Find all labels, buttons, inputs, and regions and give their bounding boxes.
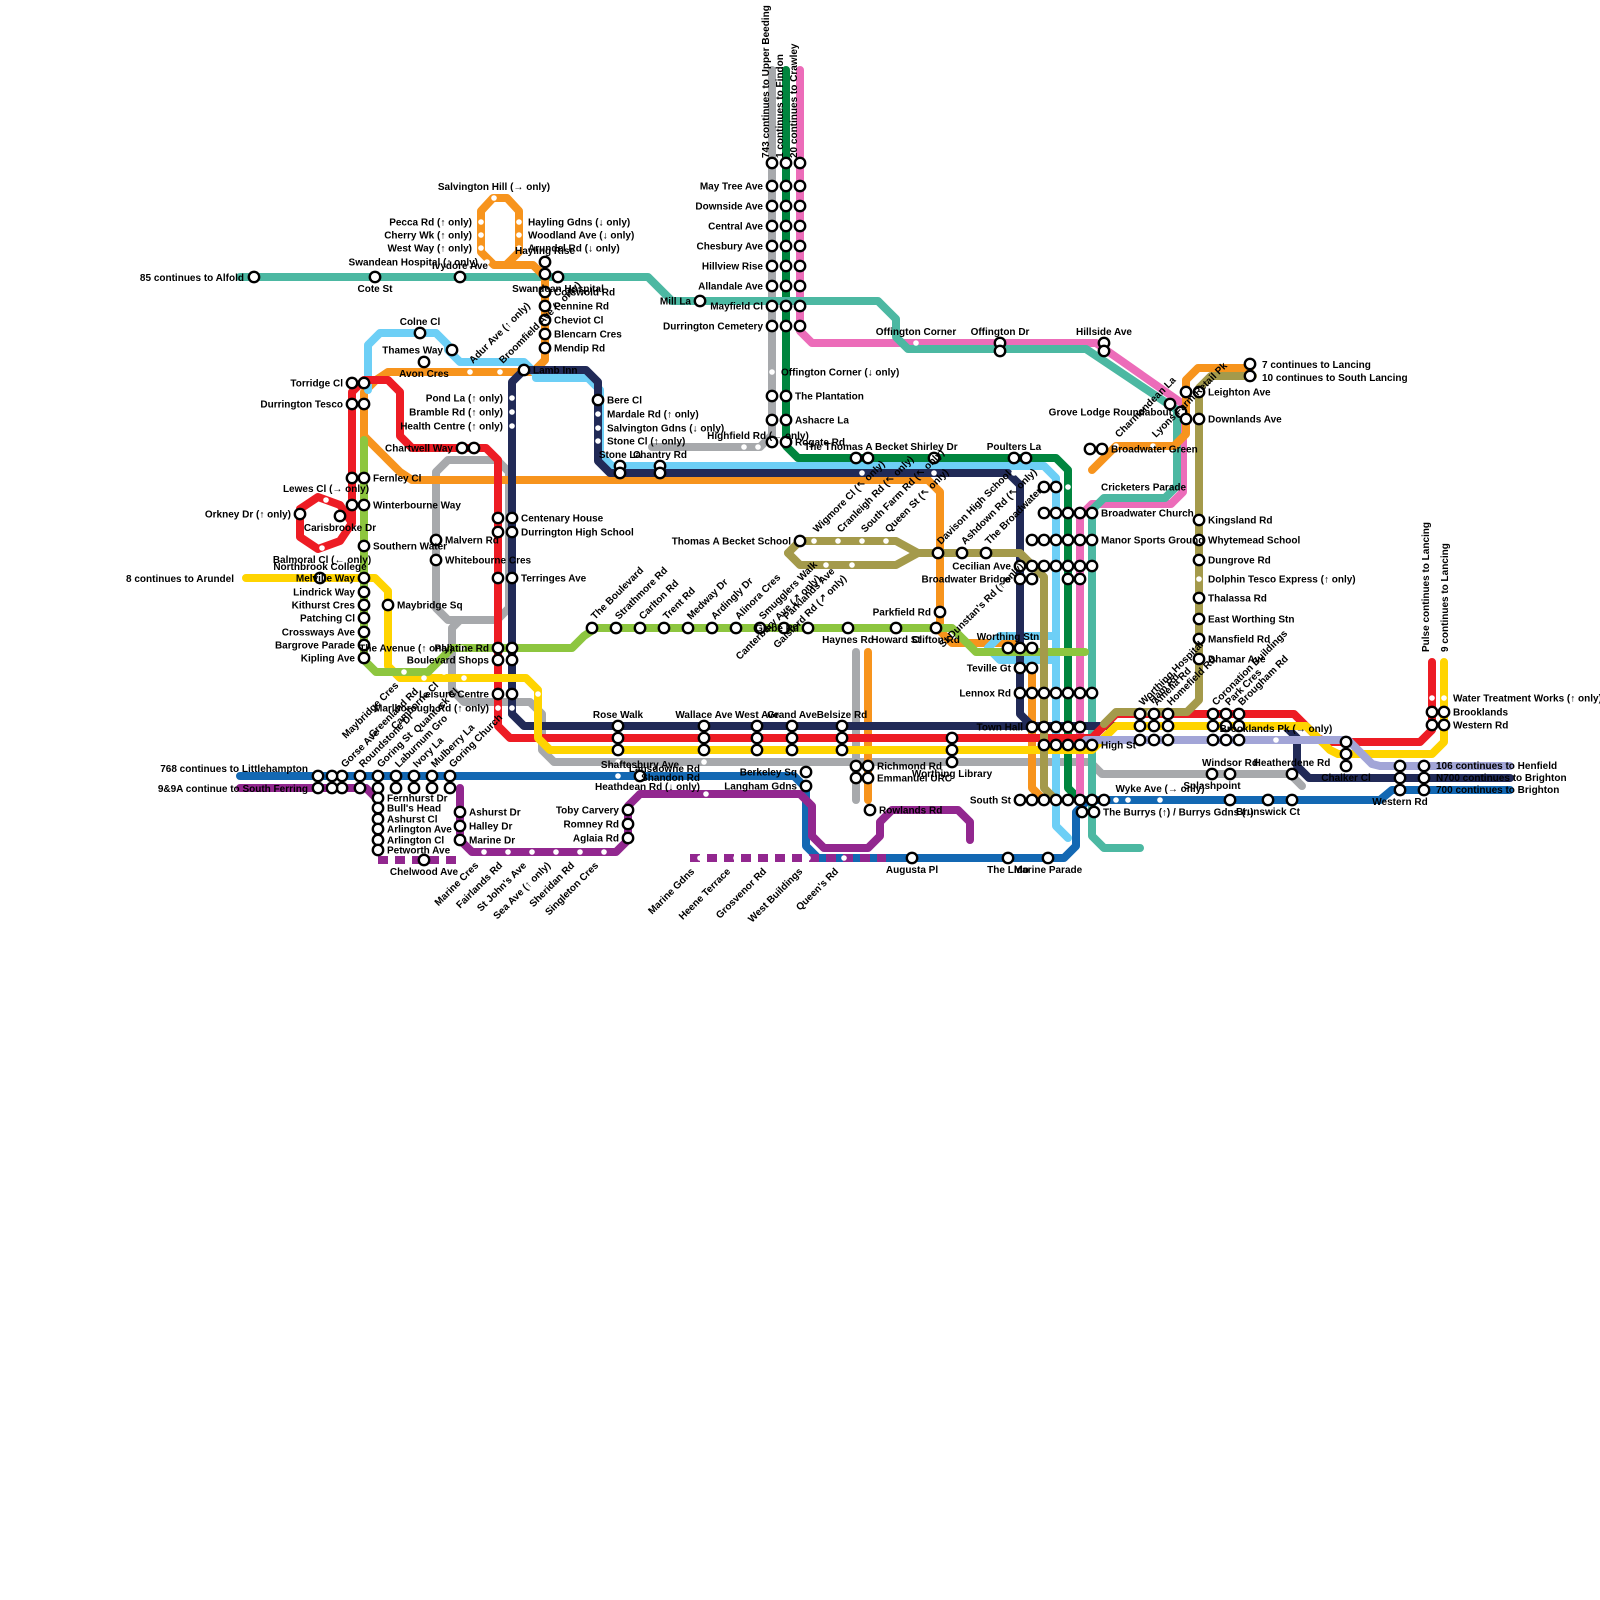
stop-label: Lamb Inn bbox=[533, 366, 577, 377]
stop-label: Wallace Ave bbox=[675, 710, 733, 721]
stop-marker bbox=[409, 783, 419, 793]
stop-label: Ashacre La bbox=[795, 416, 849, 427]
stop-marker bbox=[1194, 593, 1204, 603]
stop-marker bbox=[1419, 773, 1429, 783]
stop-label: Bull's Head bbox=[387, 804, 441, 815]
stop-marker bbox=[1427, 720, 1437, 730]
stop-marker bbox=[613, 745, 623, 755]
stop-marker bbox=[781, 158, 791, 168]
stop-marker bbox=[781, 221, 791, 231]
stop-marker bbox=[455, 821, 465, 831]
stop-marker bbox=[355, 783, 365, 793]
stop-label: Colne Cl bbox=[400, 317, 441, 328]
minor-stop-dot bbox=[478, 245, 484, 251]
stop-marker bbox=[767, 181, 777, 191]
stop-marker bbox=[907, 853, 917, 863]
minor-stop-dot bbox=[553, 849, 559, 855]
stop-label: Rose Walk bbox=[593, 710, 644, 721]
stop-marker bbox=[1135, 709, 1145, 719]
stop-label: Ashurst Dr bbox=[469, 808, 521, 819]
stop-label: Hillview Rise bbox=[702, 262, 764, 273]
stop-marker bbox=[359, 587, 369, 597]
minor-stop-dot bbox=[755, 444, 761, 450]
minor-stop-dot bbox=[509, 395, 515, 401]
stop-marker bbox=[540, 329, 550, 339]
minor-stop-dot bbox=[461, 675, 467, 681]
stop-marker bbox=[335, 511, 345, 521]
stop-marker bbox=[370, 272, 380, 282]
stop-marker bbox=[863, 773, 873, 783]
bus-network-map: May Tree AveDownside AveCentral AveChesb… bbox=[0, 0, 1600, 1600]
minor-stop-dot bbox=[577, 849, 583, 855]
stop-marker bbox=[373, 803, 383, 813]
stop-label: May Tree Ave bbox=[700, 182, 764, 193]
stop-marker bbox=[795, 181, 805, 191]
stop-marker bbox=[795, 321, 805, 331]
stop-marker bbox=[1221, 735, 1231, 745]
stop-marker bbox=[767, 241, 777, 251]
stop-marker bbox=[1149, 721, 1159, 731]
stop-label: Terringes Ave bbox=[521, 574, 587, 585]
map-note: 743 continues to Upper Beeding bbox=[761, 5, 772, 158]
stop-label: Whitebourne Cres bbox=[445, 556, 532, 567]
minor-stop-dot bbox=[733, 855, 739, 861]
stop-label: Offington Dr bbox=[971, 327, 1030, 338]
stop-marker bbox=[347, 378, 357, 388]
stop-marker bbox=[507, 689, 517, 699]
stop-label: Winterbourne Way bbox=[373, 501, 461, 512]
stop-marker bbox=[781, 281, 791, 291]
stop-marker bbox=[1245, 359, 1255, 369]
stop-marker bbox=[1075, 508, 1085, 518]
stop-marker bbox=[1039, 688, 1049, 698]
stop-label: Cricketers Parade bbox=[1101, 483, 1186, 494]
stop-marker bbox=[933, 548, 943, 558]
stop-label: Parkfield Rd bbox=[873, 608, 931, 619]
stop-marker bbox=[1063, 688, 1073, 698]
minor-stop-dot bbox=[937, 653, 943, 659]
stop-label: Belsize Rd bbox=[817, 710, 868, 721]
stop-label: Mayfield Cl bbox=[710, 302, 763, 313]
stop-marker bbox=[1051, 508, 1061, 518]
stop-label: Grove Lodge Roundabout bbox=[1049, 408, 1173, 419]
stop-marker bbox=[851, 773, 861, 783]
stop-marker bbox=[1341, 749, 1351, 759]
stop-marker bbox=[1039, 508, 1049, 518]
stop-marker bbox=[1075, 740, 1085, 750]
stop-marker bbox=[623, 805, 633, 815]
map-note: 106 continues to Henfield bbox=[1436, 761, 1557, 772]
stop-marker bbox=[1051, 482, 1061, 492]
map-note: 85 continues to Alfold bbox=[140, 273, 244, 284]
stop-label: Mansfield Rd bbox=[1208, 635, 1270, 646]
stop-marker bbox=[1439, 720, 1449, 730]
stop-label: Worthing Library bbox=[912, 769, 993, 780]
stop-label: Crossways Ave bbox=[282, 628, 356, 639]
stop-marker bbox=[615, 468, 625, 478]
stop-label: Northbrook College bbox=[273, 562, 367, 573]
stop-marker bbox=[359, 541, 369, 551]
stop-marker bbox=[347, 500, 357, 510]
stop-marker bbox=[553, 272, 563, 282]
stop-label: Kipling Ave bbox=[301, 654, 356, 665]
stop-marker bbox=[1043, 853, 1053, 863]
stop-marker bbox=[1039, 722, 1049, 732]
stop-marker bbox=[781, 301, 791, 311]
stop-marker bbox=[1087, 508, 1097, 518]
stop-marker bbox=[843, 623, 853, 633]
stop-marker bbox=[1027, 663, 1037, 673]
stop-marker bbox=[767, 281, 777, 291]
stop-marker bbox=[1063, 574, 1073, 584]
stop-marker bbox=[1027, 574, 1037, 584]
stop-marker bbox=[1194, 555, 1204, 565]
stop-label: Pond La (↑ only) bbox=[426, 394, 503, 405]
stop-label: Windsor Rd bbox=[1202, 758, 1258, 769]
stop-marker bbox=[787, 733, 797, 743]
stop-marker bbox=[683, 623, 693, 633]
stop-label: Dolphin Tesco Express (↑ only) bbox=[1208, 575, 1356, 586]
stop-label: Broadwater Church bbox=[1101, 509, 1194, 520]
map-note: 20 continues to Crawley bbox=[789, 43, 800, 158]
minor-stop-dot bbox=[1429, 695, 1435, 701]
stop-label: Manor Sports Ground bbox=[1101, 536, 1204, 547]
map-note: 7 continues to Lancing bbox=[1262, 360, 1371, 371]
stop-label: Carisbrooke Dr bbox=[304, 523, 376, 534]
minor-stop-dot bbox=[319, 545, 325, 551]
stop-marker bbox=[1089, 807, 1099, 817]
stop-marker bbox=[1063, 740, 1073, 750]
stop-label: Brooklands Pk (→ only) bbox=[1220, 724, 1333, 735]
stop-marker bbox=[373, 824, 383, 834]
stop-marker bbox=[455, 272, 465, 282]
stop-marker bbox=[957, 548, 967, 558]
stop-marker bbox=[540, 257, 550, 267]
map-note: 700 continues to Brighton bbox=[1436, 785, 1559, 796]
stop-marker bbox=[415, 328, 425, 338]
stop-marker bbox=[1051, 535, 1061, 545]
stop-marker bbox=[935, 607, 945, 617]
stop-marker bbox=[540, 269, 550, 279]
stop-marker bbox=[1149, 735, 1159, 745]
stop-marker bbox=[1163, 735, 1173, 745]
minor-stop-dot bbox=[601, 849, 607, 855]
stop-marker bbox=[359, 627, 369, 637]
stop-label: Marine Dr bbox=[469, 836, 515, 847]
map-note: 1 continues to Findon bbox=[775, 54, 786, 158]
minor-stop-dot bbox=[516, 232, 522, 238]
minor-stop-dot bbox=[495, 705, 501, 711]
stop-marker bbox=[1287, 769, 1297, 779]
stop-marker bbox=[1003, 853, 1013, 863]
stop-label: Southern Water bbox=[373, 542, 447, 553]
stop-marker bbox=[1015, 795, 1025, 805]
stop-label: Cherry Wk (↑ only) bbox=[384, 231, 472, 242]
stop-marker bbox=[1051, 688, 1061, 698]
minor-stop-dot bbox=[811, 538, 817, 544]
stop-marker bbox=[1208, 735, 1218, 745]
stop-marker bbox=[851, 453, 861, 463]
stop-marker bbox=[1234, 735, 1244, 745]
stop-marker bbox=[767, 201, 777, 211]
stop-label: Augusta Pl bbox=[886, 865, 938, 876]
stop-label: Langham Gdns bbox=[724, 782, 797, 793]
stop-marker bbox=[795, 261, 805, 271]
minor-stop-dot bbox=[509, 409, 515, 415]
stop-marker bbox=[1135, 721, 1145, 731]
stop-marker bbox=[767, 158, 777, 168]
stop-marker bbox=[1163, 709, 1173, 719]
stop-marker bbox=[1051, 740, 1061, 750]
minor-stop-dot bbox=[741, 444, 747, 450]
stop-marker bbox=[445, 783, 455, 793]
minor-stop-dot bbox=[1441, 695, 1447, 701]
stop-label: Chantry Rd bbox=[633, 450, 687, 461]
stop-marker bbox=[1015, 663, 1025, 673]
bus-network-map-svg: May Tree AveDownside AveCentral AveChesb… bbox=[0, 0, 1600, 1600]
stop-marker bbox=[1341, 761, 1351, 771]
stop-marker bbox=[1221, 709, 1231, 719]
stop-label: East Worthing Stn bbox=[1208, 615, 1294, 626]
stop-label: Arundel Rd (↓ only) bbox=[528, 244, 620, 255]
stop-marker bbox=[493, 513, 503, 523]
stop-label: Lewes Cl (→ only) bbox=[283, 484, 369, 495]
stop-label: Offington Corner bbox=[876, 327, 957, 338]
stop-label: Stone Cl (↑ only) bbox=[607, 437, 685, 448]
stop-marker bbox=[1245, 371, 1255, 381]
map-note: 9 continues to Lancing bbox=[1440, 543, 1451, 652]
stop-marker bbox=[313, 771, 323, 781]
stop-marker bbox=[1039, 535, 1049, 545]
stop-marker bbox=[1194, 414, 1204, 424]
map-note: Heathdean Rd (↓ only) bbox=[595, 782, 700, 793]
stop-marker bbox=[1419, 785, 1429, 795]
stop-label: Chalker Cl bbox=[1321, 773, 1371, 784]
stop-marker bbox=[1063, 508, 1073, 518]
stop-marker bbox=[507, 643, 517, 653]
minor-stop-dot bbox=[769, 369, 775, 375]
stop-marker bbox=[493, 573, 503, 583]
stop-marker bbox=[507, 513, 517, 523]
map-note: N700 continues to Brighton bbox=[1436, 773, 1567, 784]
stop-label: Blencarn Cres bbox=[554, 330, 622, 341]
stop-label: Petworth Ave bbox=[387, 846, 451, 857]
stop-label: Chelwood Ave bbox=[390, 867, 459, 878]
stop-marker bbox=[1263, 795, 1273, 805]
stop-marker bbox=[1208, 721, 1218, 731]
minor-stop-dot bbox=[697, 855, 703, 861]
route-purple-west bbox=[240, 788, 378, 852]
map-note: 768 continues to Littlehampton bbox=[160, 764, 308, 775]
stop-marker bbox=[507, 527, 517, 537]
minor-stop-dot bbox=[481, 849, 487, 855]
stop-marker bbox=[1207, 769, 1217, 779]
stop-label: Highfield Rd (← only) bbox=[707, 431, 809, 442]
minor-stop-dot bbox=[478, 232, 484, 238]
minor-stop-dot bbox=[1113, 797, 1119, 803]
stop-label: Thalassa Rd bbox=[1208, 594, 1267, 605]
stop-label: South St bbox=[970, 796, 1012, 807]
stop-marker bbox=[699, 745, 709, 755]
stop-marker bbox=[1087, 795, 1097, 805]
minor-stop-dot bbox=[478, 219, 484, 225]
stop-label: Romney Rd bbox=[563, 820, 619, 831]
minor-stop-dot bbox=[1273, 737, 1279, 743]
stop-label: Bramble Rd (↑ only) bbox=[409, 408, 503, 419]
stop-label: Broadwater Green bbox=[1111, 445, 1198, 456]
stop-marker bbox=[752, 733, 762, 743]
stop-marker bbox=[767, 321, 777, 331]
stop-label: Lindrick Way bbox=[293, 588, 355, 599]
stop-label: Downlands Ave bbox=[1208, 415, 1282, 426]
stop-label: Orkney Dr (↑ only) bbox=[205, 510, 291, 521]
minor-stop-dot bbox=[595, 411, 601, 417]
stop-marker bbox=[767, 221, 777, 231]
stop-marker bbox=[1087, 561, 1097, 571]
stop-marker bbox=[1163, 721, 1173, 731]
minor-stop-dot bbox=[769, 855, 775, 861]
stop-label: Maybridge Sq bbox=[397, 601, 463, 612]
stop-label: Bere Cl bbox=[607, 396, 642, 407]
stop-marker bbox=[1075, 574, 1085, 584]
stop-marker bbox=[795, 241, 805, 251]
minor-stop-dot bbox=[323, 497, 329, 503]
stop-marker bbox=[1063, 535, 1073, 545]
stop-marker bbox=[613, 721, 623, 731]
stop-marker bbox=[1003, 643, 1013, 653]
stop-marker bbox=[1075, 535, 1085, 545]
stop-marker bbox=[781, 181, 791, 191]
stop-label: Durrington Tesco bbox=[260, 400, 343, 411]
stop-marker bbox=[1395, 773, 1405, 783]
stop-label: Offington Corner (↓ only) bbox=[781, 368, 899, 379]
stop-marker bbox=[767, 391, 777, 401]
stop-marker bbox=[623, 819, 633, 829]
stop-label: Melville Way bbox=[296, 574, 356, 585]
stop-marker bbox=[1051, 722, 1061, 732]
stop-marker bbox=[781, 241, 791, 251]
stop-marker bbox=[801, 767, 811, 777]
stop-marker bbox=[1039, 561, 1049, 571]
stop-label: Allandale Ave bbox=[698, 282, 763, 293]
stop-marker bbox=[1039, 740, 1049, 750]
stop-label: Town Hall bbox=[977, 723, 1024, 734]
stop-label: Malvern Rd bbox=[445, 536, 499, 547]
stop-marker bbox=[327, 771, 337, 781]
route-purple-goring-loop bbox=[460, 788, 970, 852]
stop-marker bbox=[787, 721, 797, 731]
stop-marker bbox=[593, 395, 603, 405]
minor-stop-dot bbox=[441, 669, 447, 675]
stop-marker bbox=[699, 733, 709, 743]
stop-label: High St bbox=[1101, 741, 1137, 752]
stop-marker bbox=[767, 261, 777, 271]
stop-label: Poulters La bbox=[987, 442, 1042, 453]
stop-marker bbox=[1063, 561, 1073, 571]
stop-marker bbox=[419, 357, 429, 367]
stop-marker bbox=[1097, 444, 1107, 454]
stop-label: Haynes Rd bbox=[822, 635, 874, 646]
stop-marker bbox=[540, 343, 550, 353]
stop-marker bbox=[1194, 515, 1204, 525]
stop-label: Thames Way bbox=[382, 346, 443, 357]
stop-label: Brunswick Ct bbox=[1236, 807, 1301, 818]
stop-label: Central Ave bbox=[708, 222, 763, 233]
stop-label: Downside Ave bbox=[695, 202, 763, 213]
stop-marker bbox=[659, 623, 669, 633]
stop-marker bbox=[863, 761, 873, 771]
stop-marker bbox=[313, 783, 323, 793]
minor-stop-dot bbox=[849, 562, 855, 568]
stop-marker bbox=[801, 781, 811, 791]
stop-marker bbox=[347, 473, 357, 483]
minor-stop-dot bbox=[421, 675, 427, 681]
stop-marker bbox=[1085, 444, 1095, 454]
stop-label: Berkeley Sq bbox=[740, 768, 797, 779]
stop-label: The Thomas A Becket bbox=[804, 442, 908, 453]
stop-label: Teville Gt bbox=[967, 664, 1012, 675]
stop-marker bbox=[795, 281, 805, 291]
stop-marker bbox=[795, 158, 805, 168]
stop-label: Mendip Rd bbox=[554, 344, 605, 355]
stop-marker bbox=[431, 555, 441, 565]
stop-label: Heatherdene Rd bbox=[1254, 758, 1331, 769]
minor-stop-dot bbox=[1196, 576, 1202, 582]
minor-stop-dot bbox=[859, 538, 865, 544]
minor-stop-dot bbox=[913, 340, 919, 346]
stop-marker bbox=[493, 655, 503, 665]
stop-marker bbox=[359, 378, 369, 388]
stop-marker bbox=[995, 346, 1005, 356]
stop-label: Splashpoint bbox=[1183, 781, 1241, 792]
stop-label: Aglaia Rd bbox=[573, 834, 619, 845]
map-note: 8 continues to Arundel bbox=[126, 574, 234, 585]
stop-label: Brooklands bbox=[1453, 708, 1508, 719]
stop-marker bbox=[383, 600, 393, 610]
minor-stop-dot bbox=[1089, 484, 1095, 490]
route-grey-north bbox=[652, 70, 772, 447]
stop-marker bbox=[373, 845, 383, 855]
stop-marker bbox=[359, 500, 369, 510]
minor-stop-dot bbox=[505, 849, 511, 855]
stop-marker bbox=[519, 365, 529, 375]
map-note: Pulse continues to Lancing bbox=[1421, 522, 1432, 652]
route-orange-hs-loop bbox=[481, 198, 519, 265]
stop-marker bbox=[863, 453, 873, 463]
stop-marker bbox=[795, 536, 805, 546]
stop-label: Boulevard Shops bbox=[407, 656, 490, 667]
stop-marker bbox=[1051, 561, 1061, 571]
stop-marker bbox=[695, 296, 705, 306]
stop-marker bbox=[493, 689, 503, 699]
stop-label: Patching Cl bbox=[300, 614, 355, 625]
stop-label: Cote St bbox=[358, 284, 394, 295]
stop-marker bbox=[391, 783, 401, 793]
stop-marker bbox=[752, 745, 762, 755]
stop-marker bbox=[1194, 614, 1204, 624]
stop-marker bbox=[249, 272, 259, 282]
stop-marker bbox=[851, 761, 861, 771]
minor-stop-dot bbox=[509, 705, 515, 711]
stop-label: Mill La bbox=[660, 297, 692, 308]
stop-marker bbox=[947, 733, 957, 743]
stop-marker bbox=[707, 623, 717, 633]
stop-label: Western Rd bbox=[1372, 797, 1427, 808]
stop-label: Centenary House bbox=[521, 514, 604, 525]
stop-marker bbox=[1009, 453, 1019, 463]
stop-label: Lennox Rd bbox=[959, 689, 1011, 700]
stop-marker bbox=[373, 771, 383, 781]
